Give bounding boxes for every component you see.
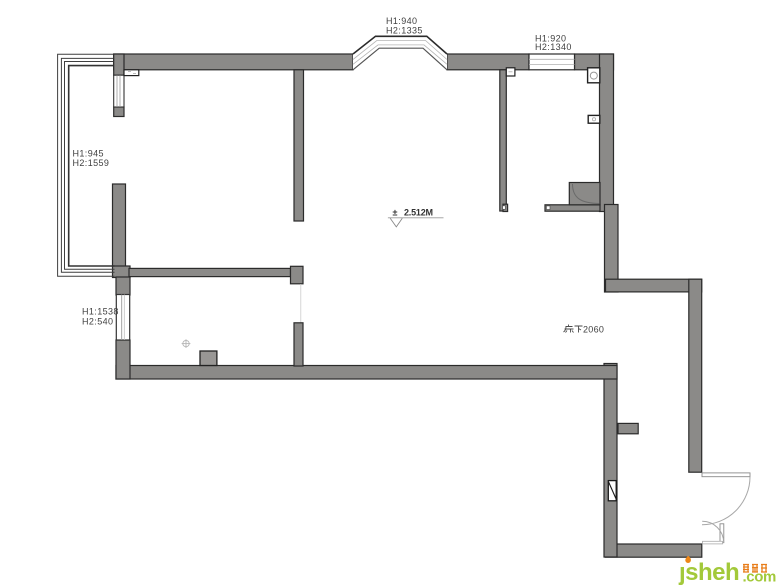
- svg-text:H2:1335: H2:1335: [386, 26, 423, 36]
- svg-text:2.512M: 2.512M: [404, 208, 433, 218]
- svg-text:±: ±: [393, 208, 398, 218]
- svg-text:jsheh: jsheh: [678, 559, 739, 585]
- svg-text:H2:540: H2:540: [82, 316, 113, 326]
- svg-text:H2:1340: H2:1340: [535, 42, 572, 52]
- svg-text:H1:940: H1:940: [386, 16, 417, 26]
- svg-text:H1:945: H1:945: [73, 148, 104, 158]
- svg-text:H2:1559: H2:1559: [73, 158, 110, 168]
- svg-text:2060: 2060: [583, 325, 604, 335]
- svg-text:H1:1538: H1:1538: [82, 307, 119, 317]
